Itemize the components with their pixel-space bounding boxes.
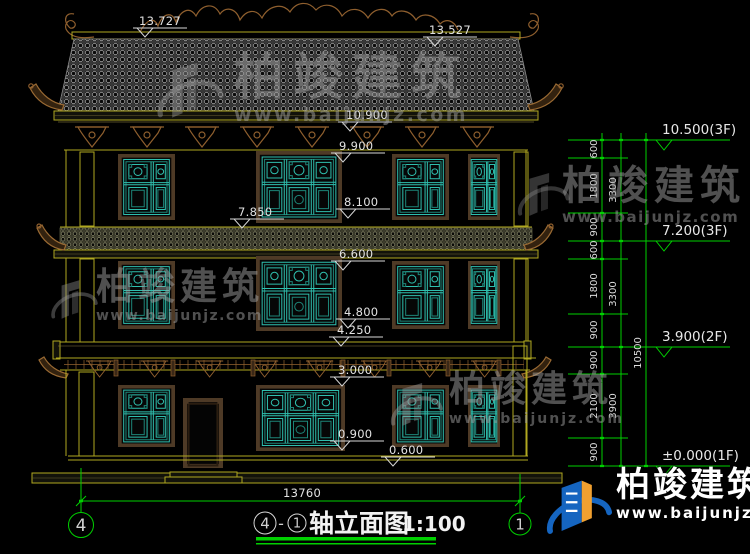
- level-label: 3.000: [338, 363, 372, 377]
- skirt-roof: [37, 224, 553, 258]
- window: [394, 387, 448, 446]
- window-wide: [258, 387, 343, 450]
- svg-text:3900: 3900: [608, 393, 619, 418]
- total-width-label: 13760: [283, 486, 321, 500]
- roof-eave-tip-left: [29, 84, 64, 110]
- floor-elevation-label: 7.200(3F): [662, 223, 728, 239]
- svg-text:600: 600: [589, 240, 600, 259]
- entry-step: [165, 472, 242, 483]
- window-narrow: [469, 156, 499, 219]
- window: [394, 156, 448, 219]
- ridge-end-ornament-right: [510, 14, 538, 38]
- floor-3-wall: [66, 150, 528, 227]
- eave-tip-left: [39, 357, 68, 378]
- svg-text:900: 900: [589, 217, 600, 236]
- ridge-right-label: 13.527: [429, 23, 471, 37]
- right-dim-total: 10500: [633, 337, 644, 369]
- window: [120, 156, 174, 219]
- svg-text:2100: 2100: [589, 393, 600, 418]
- title-axis-end: 1: [293, 517, 301, 532]
- svg-text:3300: 3300: [608, 177, 619, 202]
- floor-elevation-label: 10.500(3F): [662, 122, 736, 138]
- floor-1-eave: [39, 357, 551, 378]
- right-dim-column: 600 1800 900 600 1800 900 900 2100 900 3…: [568, 122, 739, 476]
- main-roof: [29, 32, 563, 122]
- drawing-title: 4 - 1 轴立面图 1:100: [254, 509, 466, 545]
- level-label: 9.900: [339, 139, 373, 153]
- svg-text:900: 900: [589, 442, 600, 461]
- cad-elevation-drawing: 13760 4 1 13.727 13.527 10.900 9.900 8.1…: [0, 0, 750, 554]
- window: [120, 387, 174, 446]
- title-underline: [256, 537, 436, 541]
- window: [120, 263, 174, 328]
- window-narrow: [469, 263, 499, 328]
- level-label: 7.850: [238, 205, 272, 219]
- svg-text:1800: 1800: [589, 173, 600, 198]
- title-text: 轴立面图: [309, 509, 409, 538]
- corner-column: [80, 152, 94, 226]
- floor-elevation-label: ±0.000(1F): [662, 448, 739, 464]
- base-platform: [32, 456, 562, 483]
- bracket-row: [64, 127, 528, 150]
- level-label: 4.800: [344, 305, 378, 319]
- title-separator: -: [278, 514, 284, 533]
- svg-text:600: 600: [589, 139, 600, 158]
- svg-text:3300: 3300: [608, 281, 619, 306]
- corner-column: [79, 372, 94, 456]
- window: [394, 263, 448, 328]
- level-label: 10.900: [346, 108, 388, 122]
- ridge-end-ornament-left: [66, 14, 94, 38]
- corner-column: [80, 259, 94, 342]
- level-label: 0.900: [338, 427, 372, 441]
- waistband: [53, 341, 531, 359]
- svg-text:1800: 1800: [589, 273, 600, 298]
- level-label: 8.100: [344, 195, 378, 209]
- ridge-left-label: 13.727: [139, 14, 181, 28]
- level-label: 4.250: [337, 323, 371, 337]
- roof-eave-tip-right: [528, 84, 563, 110]
- title-axis-start: 4: [260, 515, 270, 533]
- level-label: 0.600: [389, 443, 423, 457]
- window-wide: [258, 258, 340, 329]
- right-dim-inner-segments: 600 1800 900 600 1800 900 900 2100 900: [589, 139, 600, 461]
- window-narrow: [469, 387, 499, 446]
- title-scale: 1:100: [402, 512, 466, 536]
- axis-bubble-right: 1: [515, 516, 525, 534]
- floor-elevation-label: 3.900(2F): [662, 329, 728, 345]
- floor-elevation-markers: 10.500(3F) 7.200(3F) 3.900(2F) ±0.000(1F…: [648, 122, 739, 476]
- svg-text:900: 900: [589, 350, 600, 369]
- svg-text:900: 900: [589, 320, 600, 339]
- axis-bubble-left: 4: [76, 516, 87, 536]
- level-label: 6.600: [339, 247, 373, 261]
- elevation-canvas: 13760 4 1 13.727 13.527 10.900 9.900 8.1…: [0, 0, 750, 554]
- floor-2-wall: [66, 258, 528, 342]
